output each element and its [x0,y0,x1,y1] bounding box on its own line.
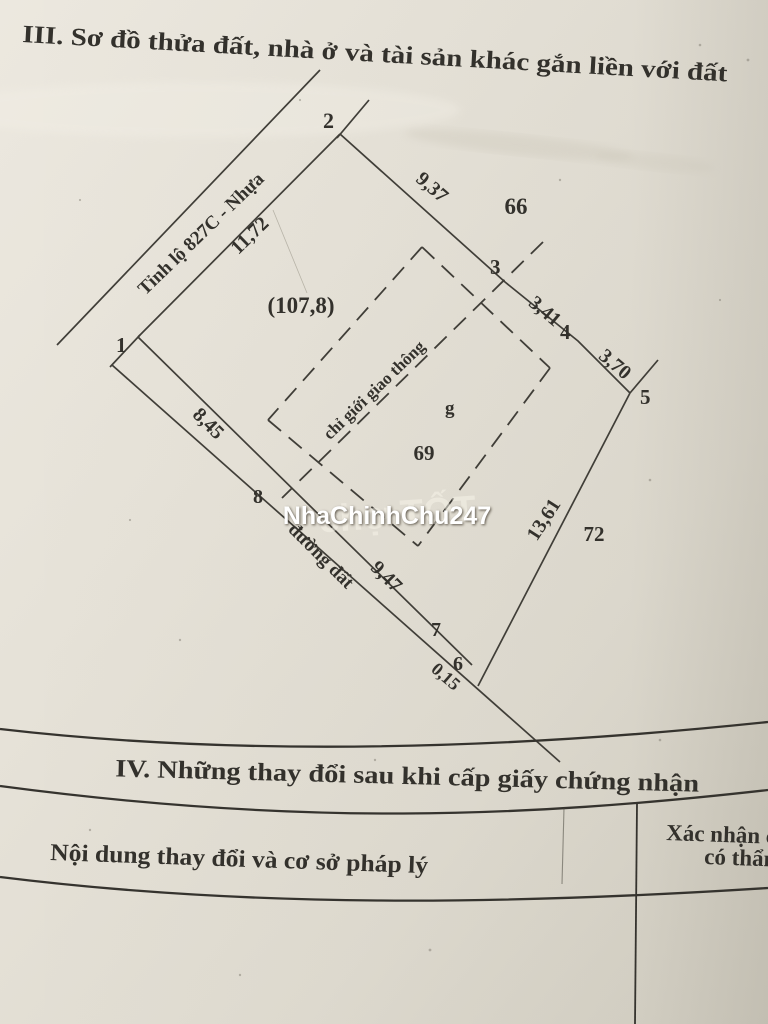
point-label-3: 3 [490,255,501,279]
point-label-2: 2 [323,108,334,133]
point-label-4: 4 [560,320,571,344]
point-label-1: 1 [116,333,127,357]
neighbor-plot-66: 66 [505,194,528,219]
point-label-8: 8 [253,486,263,508]
watermark: NhaChinhChu247 [283,502,491,530]
parcel-number: 69 [414,441,435,465]
structure-letter-g: g [445,398,455,419]
land-certificate-photo: III. Sơ đồ thửa đất, nhà ở và tài sản kh… [0,0,768,1024]
certificate-canvas: III. Sơ đồ thửa đất, nhà ở và tài sản kh… [0,0,768,1024]
neighbor-plot-72: 72 [584,522,605,546]
point-label-7: 7 [431,619,441,641]
area-label: (107,8) [267,293,334,318]
point-label-5: 5 [640,385,651,409]
column-header-confirm-line2: có thẩm [704,844,768,872]
